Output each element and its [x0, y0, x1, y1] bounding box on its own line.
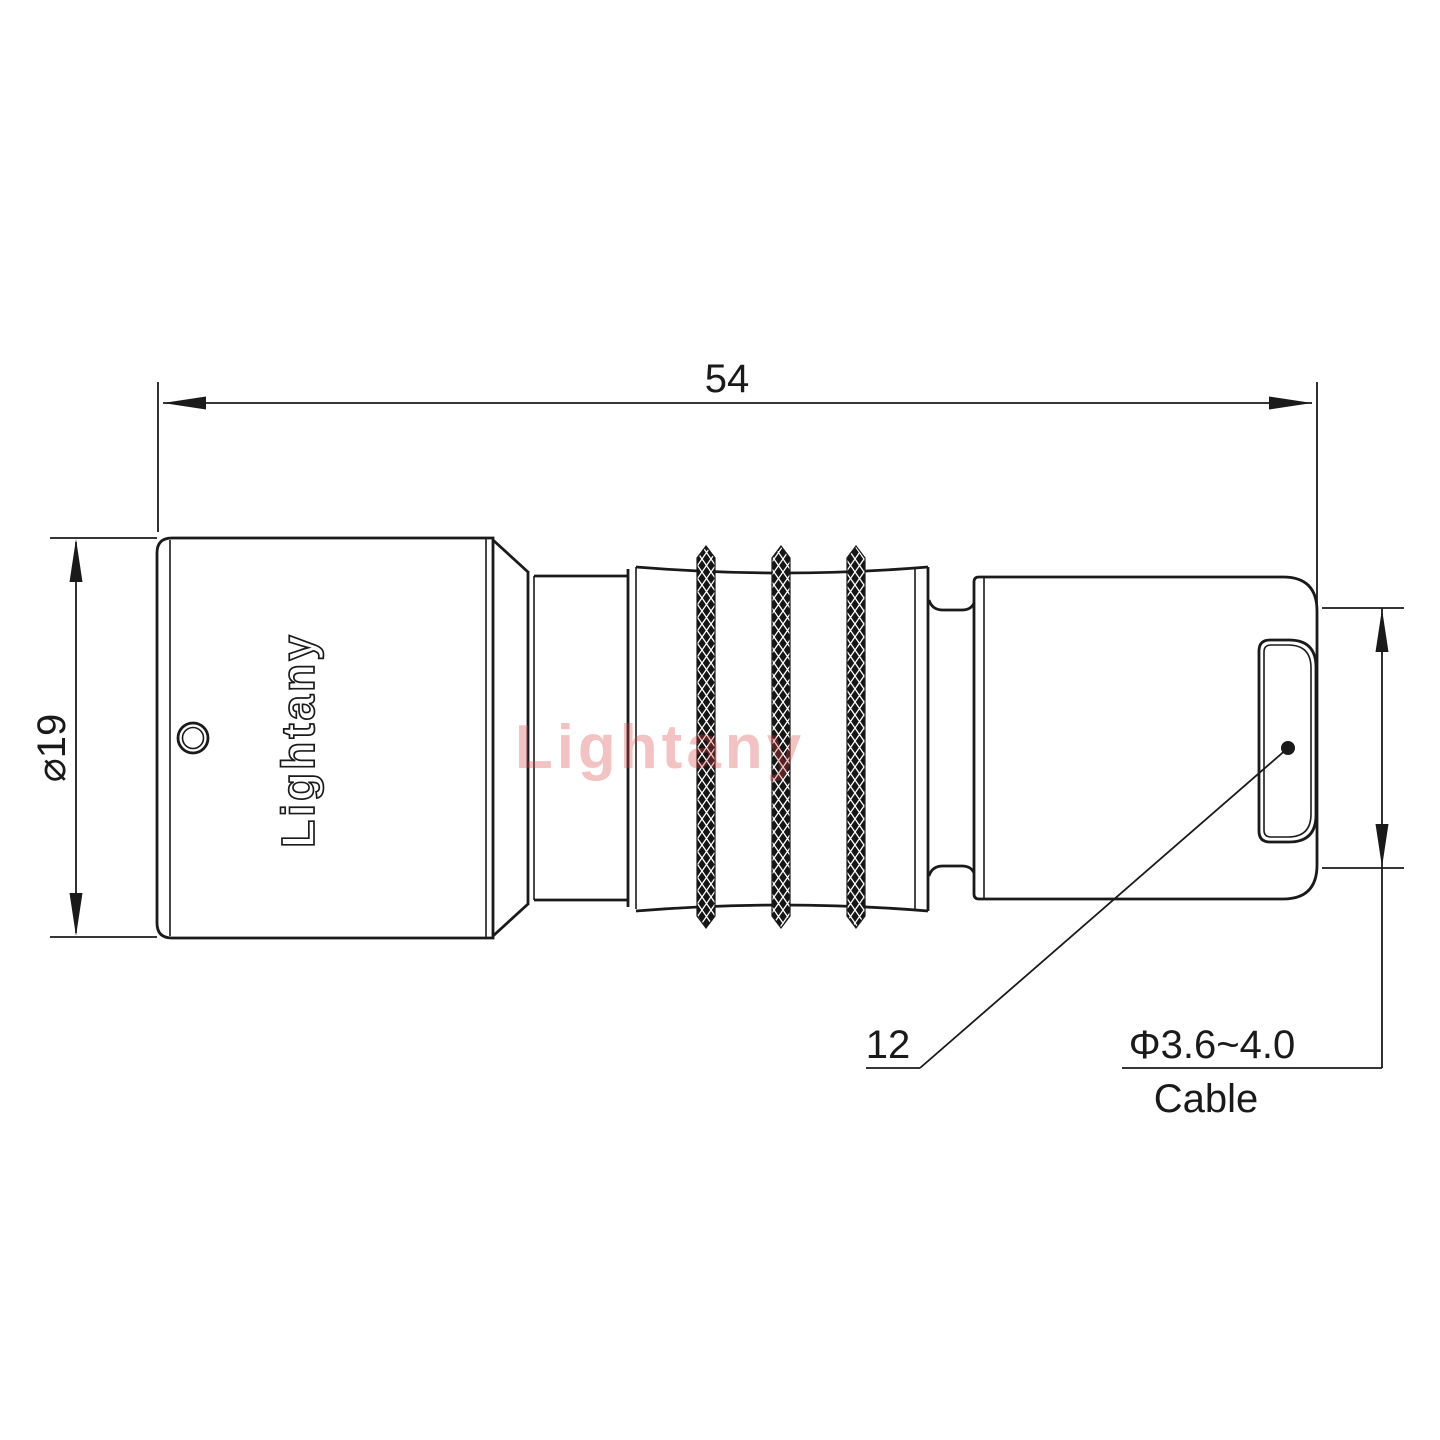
- back-nut: [974, 577, 1317, 899]
- drawing-canvas: 54 ⌀19 Lightany: [0, 0, 1440, 1440]
- body-logo-text: Lightany: [272, 632, 324, 848]
- dimension-label-54: 54: [705, 357, 750, 401]
- chamfer-top: [493, 540, 528, 572]
- chamfer-bottom: [493, 904, 528, 936]
- neck-top: [929, 600, 974, 610]
- arrowhead-left: [163, 397, 206, 410]
- dimension-body-diameter: ⌀19: [30, 538, 157, 937]
- arrowhead-down: [1376, 824, 1389, 867]
- cable-word-label: Cable: [1154, 1077, 1259, 1121]
- neck-bottom: [929, 866, 974, 876]
- watermark-text: Lightany: [515, 713, 805, 782]
- dimension-label-d19: ⌀19: [30, 714, 74, 783]
- arrowhead-right: [1269, 397, 1312, 410]
- callout-label-12: 12: [866, 1023, 911, 1067]
- callout-back-nut-12: 12: [866, 741, 1295, 1068]
- arrowhead-down: [70, 893, 83, 936]
- cable-boot-outer: [1259, 640, 1316, 842]
- cable-boot-inner: [1264, 645, 1311, 837]
- connector-technical-drawing: 54 ⌀19 Lightany: [0, 0, 1440, 1440]
- dimension-cable: Φ3.6~4.0 Cable: [1122, 608, 1404, 1121]
- arrowhead-up: [1376, 609, 1389, 652]
- cable-range-label: Φ3.6~4.0: [1129, 1023, 1295, 1067]
- arrowhead-up: [70, 539, 83, 582]
- locating-hole-inner: [183, 728, 204, 749]
- knurl-band-3: [847, 546, 865, 928]
